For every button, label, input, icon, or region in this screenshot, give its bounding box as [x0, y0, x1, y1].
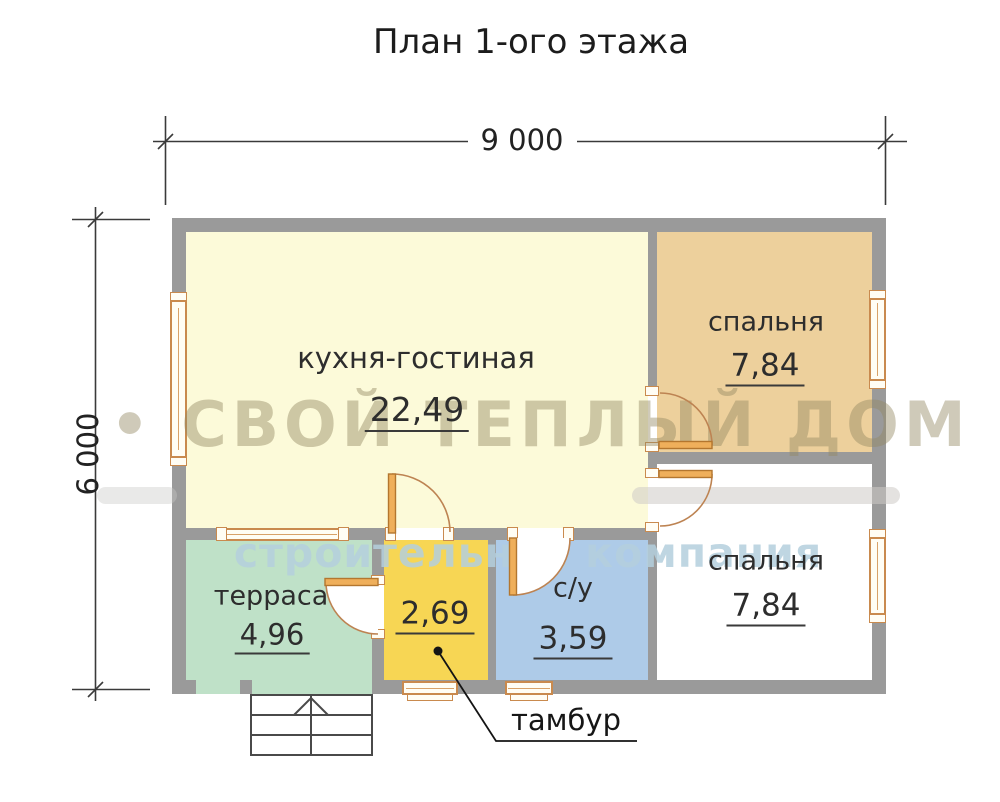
label-bathroom-area: 3,59 [533, 621, 612, 660]
label-bathroom-name: с/у [553, 573, 593, 604]
floor-plan-page: План 1-ого этажа • СВОЙ [0, 0, 1000, 802]
door-leaf-bedroom-bottom [659, 471, 712, 478]
label-bedroom-bottom-name: спальня [708, 546, 824, 577]
dimension-height-label: 6 000 [71, 412, 105, 495]
callout-tambour-label: тамбур [511, 703, 621, 737]
door-arc-bedroom-bottom [660, 474, 712, 526]
label-tambour-area: 2,69 [395, 596, 474, 635]
label-bedroom-top-area: 7,84 [725, 348, 804, 387]
door-leaf-terrace [325, 579, 378, 586]
door-swing-terrace [326, 582, 378, 634]
plan-linework [0, 0, 1000, 802]
label-kitchen-area: 22,49 [365, 390, 469, 432]
label-kitchen-name: кухня-гостиная [297, 341, 535, 375]
door-arc-tambour [392, 474, 450, 532]
stairs [251, 695, 372, 755]
label-bedroom-top-name: спальня [708, 307, 824, 338]
door-arc-bedroom-top [660, 393, 712, 445]
page-title: План 1-ого этажа [373, 22, 689, 62]
dimension-width-label: 9 000 [472, 123, 571, 157]
door-leaf-tambour [389, 474, 396, 533]
label-terrace-area: 4,96 [235, 618, 310, 655]
label-bedroom-bottom-area: 7,84 [726, 588, 805, 627]
door-leaf-bedroom-top [659, 442, 712, 449]
label-terrace-name: терраса [214, 581, 329, 612]
door-leaf-bathroom [510, 538, 517, 595]
